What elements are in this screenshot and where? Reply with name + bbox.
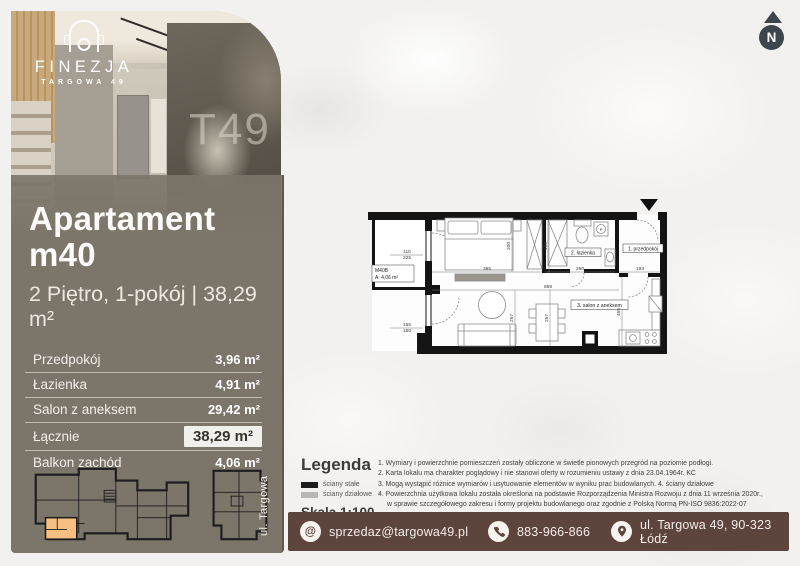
highlighted-unit (46, 518, 77, 540)
street-label: ul. Targowa (258, 450, 270, 536)
svg-text:3. salon z aneksem: 3. salon z aneksem (577, 303, 622, 309)
brochure-page: T49 FINEZJA TARGOWA 49 Apartament m40 2 … (0, 0, 800, 566)
svg-text:1. przedpokój: 1. przedpokój (628, 247, 658, 253)
svg-text:M40B: M40B (375, 268, 389, 274)
note-line: 3. Mogą wystąpić różnice wymiarów i usyt… (378, 480, 794, 490)
svg-text:225: 225 (403, 255, 411, 261)
brand-tagline: TARGOWA 49 (29, 79, 139, 86)
room-row: Łącznie38,29 m² (25, 423, 262, 451)
notes: 1. Wymiary i powierzchnie pomieszczeń zo… (378, 459, 794, 510)
note-line: 1. Wymiary i powierzchnie pomieszczeń zo… (378, 459, 794, 469)
legend-items: ściany stałeściany działowe (301, 481, 379, 498)
email-icon: @ (300, 521, 321, 542)
room-row: Salon z aneksem29,42 m² (25, 398, 262, 423)
location-pin-icon (611, 521, 632, 542)
svg-text:110: 110 (403, 249, 411, 255)
contact-email[interactable]: @ sprzedaz@targowa49.pl (300, 512, 468, 551)
note-line: 2. Karta lokalu ma charakter poglądowy i… (378, 469, 794, 479)
svg-text:2. łazienka: 2. łazienka (571, 251, 595, 257)
contact-address[interactable]: ul. Targowa 49, 90-323 Łódź (611, 512, 789, 551)
svg-text:859: 859 (544, 284, 552, 290)
compass-label: N (767, 30, 777, 45)
svg-text:150: 150 (403, 328, 411, 334)
contact-phone[interactable]: 883-966-866 (488, 512, 590, 551)
north-arrow-icon (764, 11, 782, 23)
room-row: Przedpokój3,96 m² (25, 348, 262, 373)
svg-text:257: 257 (544, 314, 550, 322)
svg-text:P: P (600, 228, 603, 232)
photo-door (117, 95, 149, 179)
contact-bar: @ sprzedaz@targowa49.pl 883-966-866 ul. … (288, 512, 789, 551)
floor-plan: 395250193859200198465257257110225155150 … (360, 193, 672, 363)
compass-icon: N (759, 25, 784, 50)
brand-name: FINEZJA (29, 58, 139, 77)
apartment-subtitle: 2 Piętro, 1-pokój | 38,29 m² (11, 273, 282, 332)
page-title: Apartament m40 (11, 175, 282, 273)
photo-door (151, 99, 166, 173)
svg-text:155: 155 (403, 322, 411, 328)
contact-email-text: sprzedaz@targowa49.pl (329, 525, 468, 539)
room-row: Łazienka4,91 m² (25, 373, 262, 398)
svg-text:A: 4,06 m²: A: 4,06 m² (375, 275, 398, 281)
svg-text:198: 198 (543, 242, 549, 250)
svg-text:250: 250 (576, 266, 584, 272)
arch-window-icon (69, 20, 99, 52)
contact-phone-text: 883-966-866 (517, 525, 590, 539)
note-line: 4. Powierzchnia użytkowa lokalu została … (378, 490, 794, 500)
contact-address-text: ul. Targowa 49, 90-323 Łódź (640, 518, 789, 546)
apartment-panel: Apartament m40 2 Piętro, 1-pokój | 38,29… (11, 175, 284, 553)
legend: Legenda ściany stałeściany działowe Skal… (301, 455, 379, 520)
legend-item: ściany działowe (301, 491, 379, 498)
legend-title: Legenda (301, 455, 379, 475)
building-mini-plan (19, 461, 287, 547)
svg-text:395: 395 (483, 266, 491, 272)
brand-logo: FINEZJA TARGOWA 49 (29, 20, 139, 86)
legend-item: ściany stałe (301, 481, 379, 488)
phone-icon (488, 521, 509, 542)
entrance-arrow-icon (640, 199, 658, 211)
svg-text:257: 257 (509, 314, 515, 322)
svg-text:200: 200 (506, 242, 512, 250)
note-line: w sprawie szczegółowego zakresu i formy … (378, 500, 794, 510)
room-area-table: Przedpokój3,96 m²Łazienka4,91 m²Salon z … (25, 348, 262, 475)
svg-text:193: 193 (636, 266, 644, 272)
